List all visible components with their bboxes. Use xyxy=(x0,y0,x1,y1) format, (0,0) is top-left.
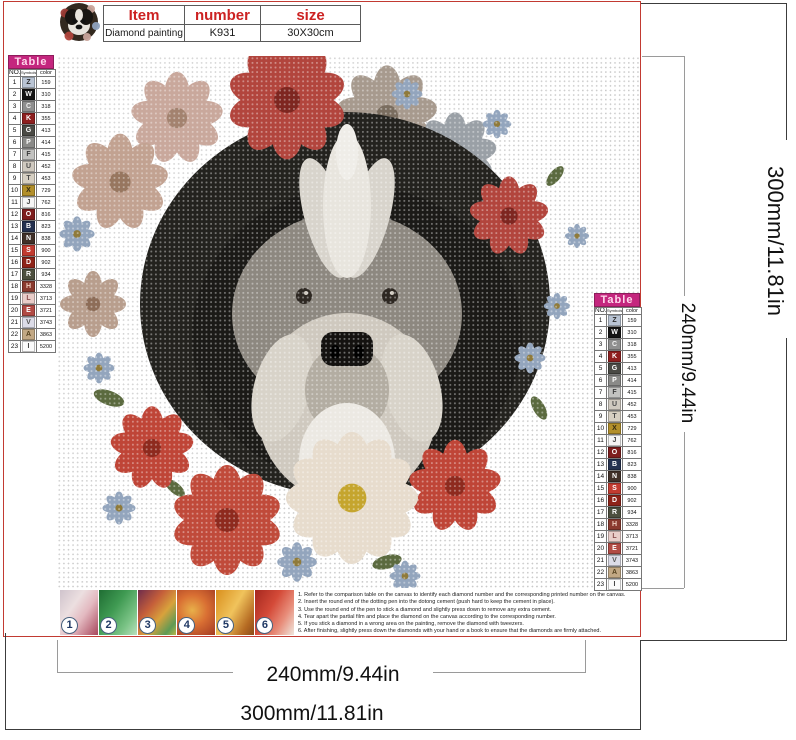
symbol-swatch: H xyxy=(22,281,35,292)
color-table-row: 18 H 3328 xyxy=(9,281,56,293)
color-table-row: 20 E 3721 xyxy=(595,543,642,555)
color-table-row: 23 I 5200 xyxy=(595,579,642,591)
color-table-row: 6 P 414 xyxy=(595,375,642,387)
dimension-line xyxy=(684,56,685,296)
symbol-swatch: P xyxy=(608,375,621,386)
color-table-row: 1 Z 159 xyxy=(9,77,56,89)
dimension-label-bottom-inner: 240mm/9.44in xyxy=(233,663,433,687)
dimension-label-bottom-outer: 300mm/11.81in xyxy=(212,702,412,726)
color-table-row: 15 S 900 xyxy=(9,245,56,257)
spec-item-value: Diamond painting xyxy=(104,25,185,42)
spec-number-value: K931 xyxy=(185,25,261,42)
instruction-step: 5. If you stick a diamond in a wrong are… xyxy=(298,621,636,628)
step-number-badge: 3 xyxy=(139,617,156,634)
step-thumbnail-1: 1 xyxy=(60,590,99,635)
color-table-row: 11 J 762 xyxy=(9,197,56,209)
instruction-step: 4. Tear apart the partial film and place… xyxy=(298,614,636,621)
color-table-row: 14 N 838 xyxy=(595,471,642,483)
symbol-swatch: X xyxy=(22,185,35,196)
diamond-painting-canvas xyxy=(57,56,640,588)
color-table-row: 2 W 310 xyxy=(9,89,56,101)
color-table-left: Table NO. Symbols color 1 Z 159 2 xyxy=(8,55,54,353)
step-thumbnail-3: 3 xyxy=(138,590,177,635)
color-table-row: 22 A 3863 xyxy=(9,329,56,341)
color-table-row: 8 U 452 xyxy=(9,161,56,173)
symbol-swatch: C xyxy=(608,339,621,350)
symbol-swatch: J xyxy=(608,435,621,446)
symbol-swatch: L xyxy=(22,293,35,304)
symbol-swatch: F xyxy=(608,387,621,398)
symbol-swatch: T xyxy=(22,173,35,184)
color-table-row: 4 K 355 xyxy=(9,113,56,125)
symbol-swatch: A xyxy=(608,567,621,578)
symbol-swatch: E xyxy=(22,305,35,316)
symbol-swatch: J xyxy=(22,197,35,208)
dimension-tick xyxy=(585,640,586,673)
step-number-badge: 4 xyxy=(178,617,195,634)
color-table-row: 23 I 5200 xyxy=(9,341,56,353)
color-table-row: 2 W 310 xyxy=(595,327,642,339)
dimension-tick xyxy=(642,588,684,589)
color-table-columns: NO. Symbols color xyxy=(9,70,56,77)
symbol-swatch: C xyxy=(22,101,35,112)
step-number-badge: 6 xyxy=(256,617,273,634)
color-table-row: 10 X 729 xyxy=(595,423,642,435)
dimension-line xyxy=(432,672,585,673)
symbol-swatch: R xyxy=(608,507,621,518)
color-table-row: 11 J 762 xyxy=(595,435,642,447)
symbol-swatch: B xyxy=(608,459,621,470)
symbol-swatch: F xyxy=(22,149,35,160)
symbol-swatch: N xyxy=(608,471,621,482)
instruction-step: 6. After finishing, slightly press down … xyxy=(298,628,636,635)
color-table-row: 13 B 823 xyxy=(595,459,642,471)
shih-tzu-logo-icon xyxy=(57,1,101,43)
color-table-row: 5 G 413 xyxy=(595,363,642,375)
dimension-tick xyxy=(640,640,641,730)
color-table-row: 10 X 729 xyxy=(9,185,56,197)
step-thumbnail-4: 4 xyxy=(177,590,216,635)
color-table-row: 16 D 902 xyxy=(9,257,56,269)
dimension-tick xyxy=(5,633,6,730)
step-thumbnail-5: 5 xyxy=(216,590,255,635)
symbol-swatch: K xyxy=(22,113,35,124)
symbol-swatch: U xyxy=(608,399,621,410)
symbol-swatch: V xyxy=(22,317,35,328)
symbol-swatch: A xyxy=(22,329,35,340)
dimension-line xyxy=(684,432,685,588)
dimension-line xyxy=(5,729,641,730)
symbol-swatch: W xyxy=(22,89,35,100)
instruction-steps: 1. Refer to the comparison table on the … xyxy=(298,592,636,636)
symbol-swatch: I xyxy=(22,341,35,352)
product-infographic: Item number size Diamond painting K931 3… xyxy=(0,0,796,740)
dimension-label-right-outer: 300mm/11.81in xyxy=(762,141,788,341)
symbol-swatch: L xyxy=(608,531,621,542)
instruction-step: 2. Insert the round end of the dotting p… xyxy=(298,599,636,606)
dimension-line xyxy=(786,3,787,140)
color-table-columns: NO. Symbols color xyxy=(595,308,642,315)
color-table-row: 9 T 453 xyxy=(9,173,56,185)
color-table-row: 21 V 3743 xyxy=(9,317,56,329)
color-table-title: Table xyxy=(8,55,54,69)
symbol-swatch: Z xyxy=(608,315,621,326)
instruction-step: 3. Use the round end of the pen to stick… xyxy=(298,607,636,614)
symbol-swatch: P xyxy=(22,137,35,148)
color-table-row: 1 Z 159 xyxy=(595,315,642,327)
color-table-right: Table NO. Symbols color 1 Z 159 2 xyxy=(594,293,640,591)
step-number-badge: 5 xyxy=(217,617,234,634)
dimension-line xyxy=(57,672,233,673)
color-table-row: 6 P 414 xyxy=(9,137,56,149)
symbol-swatch: V xyxy=(608,555,621,566)
symbol-swatch: E xyxy=(608,543,621,554)
dimension-label-right-inner: 240mm/9.44in xyxy=(676,288,698,438)
symbol-swatch: U xyxy=(22,161,35,172)
color-table-row: 13 B 823 xyxy=(9,221,56,233)
symbol-swatch: R xyxy=(22,269,35,280)
symbol-swatch: S xyxy=(22,245,35,256)
color-table-row: 19 L 3713 xyxy=(9,293,56,305)
spec-size-value: 30X30cm xyxy=(261,25,361,42)
symbol-swatch: I xyxy=(608,579,621,590)
symbol-swatch: H xyxy=(608,519,621,530)
symbol-swatch: D xyxy=(608,495,621,506)
symbol-swatch: G xyxy=(22,125,35,136)
step-thumbnail-6: 6 xyxy=(255,590,294,635)
spec-col-size: size xyxy=(261,6,361,25)
color-table-row: 8 U 452 xyxy=(595,399,642,411)
dimension-tick xyxy=(641,3,787,4)
dimension-tick xyxy=(642,56,684,57)
dog-flower-wreath-artwork xyxy=(57,56,640,588)
spec-value-row: Diamond painting K931 30X30cm xyxy=(104,25,361,42)
color-table-row: 7 F 415 xyxy=(595,387,642,399)
color-table-title: Table xyxy=(594,293,640,307)
dimension-tick xyxy=(640,640,787,641)
instruction-step: 1. Refer to the comparison table on the … xyxy=(298,592,636,599)
step-thumbnails: 1 2 3 4 5 6 xyxy=(60,590,295,635)
spec-col-item: Item xyxy=(104,6,185,25)
symbol-swatch: S xyxy=(608,483,621,494)
color-table-row: 17 R 934 xyxy=(595,507,642,519)
dimension-tick xyxy=(57,640,58,673)
color-table-row: 7 F 415 xyxy=(9,149,56,161)
color-table-row: 19 L 3713 xyxy=(595,531,642,543)
step-number-badge: 2 xyxy=(100,617,117,634)
color-table-row: 21 V 3743 xyxy=(595,555,642,567)
color-table-row: 4 K 355 xyxy=(595,351,642,363)
spec-table: Item number size Diamond painting K931 3… xyxy=(103,5,361,42)
brand-logo xyxy=(57,1,101,43)
symbol-swatch: W xyxy=(608,327,621,338)
spec-header-row: Item number size xyxy=(104,6,361,25)
symbol-swatch: B xyxy=(22,221,35,232)
color-table-row: 3 C 318 xyxy=(595,339,642,351)
symbol-swatch: K xyxy=(608,351,621,362)
symbol-swatch: N xyxy=(22,233,35,244)
color-table-row: 22 A 3863 xyxy=(595,567,642,579)
dimension-line xyxy=(786,338,787,640)
color-table-row: 12 O 816 xyxy=(595,447,642,459)
step-thumbnail-2: 2 xyxy=(99,590,138,635)
color-table-row: 16 D 902 xyxy=(595,495,642,507)
symbol-swatch: T xyxy=(608,411,621,422)
symbol-swatch: O xyxy=(608,447,621,458)
symbol-swatch: D xyxy=(22,257,35,268)
color-table-row: 3 C 318 xyxy=(9,101,56,113)
color-table-row: 18 H 3328 xyxy=(595,519,642,531)
color-table-row: 5 G 413 xyxy=(9,125,56,137)
color-table-row: 9 T 453 xyxy=(595,411,642,423)
symbol-swatch: O xyxy=(22,209,35,220)
symbol-swatch: Z xyxy=(22,77,35,88)
symbol-swatch: X xyxy=(608,423,621,434)
color-table-row: 12 O 816 xyxy=(9,209,56,221)
color-table-row: 14 N 838 xyxy=(9,233,56,245)
color-table-row: 17 R 934 xyxy=(9,269,56,281)
color-table-row: 20 E 3721 xyxy=(9,305,56,317)
symbol-swatch: G xyxy=(608,363,621,374)
spec-col-number: number xyxy=(185,6,261,25)
step-number-badge: 1 xyxy=(61,617,78,634)
color-table-row: 15 S 900 xyxy=(595,483,642,495)
